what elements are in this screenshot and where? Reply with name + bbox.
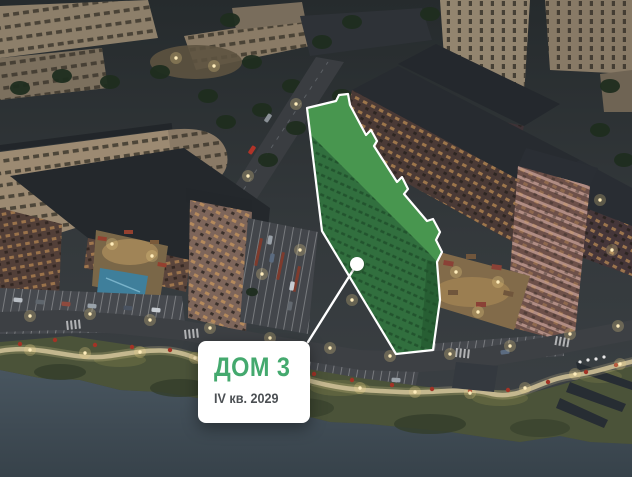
masterplan-render <box>0 0 632 477</box>
building-info-card[interactable]: ДОМ 3 IV кв. 2029 <box>198 341 310 423</box>
masterplan-view: ДОМ 3 IV кв. 2029 <box>0 0 632 477</box>
building-name: ДОМ 3 <box>214 354 290 381</box>
completion-date: IV кв. 2029 <box>214 390 278 406</box>
building-marker-dot[interactable] <box>350 257 364 271</box>
pavilion-roof <box>452 362 498 392</box>
